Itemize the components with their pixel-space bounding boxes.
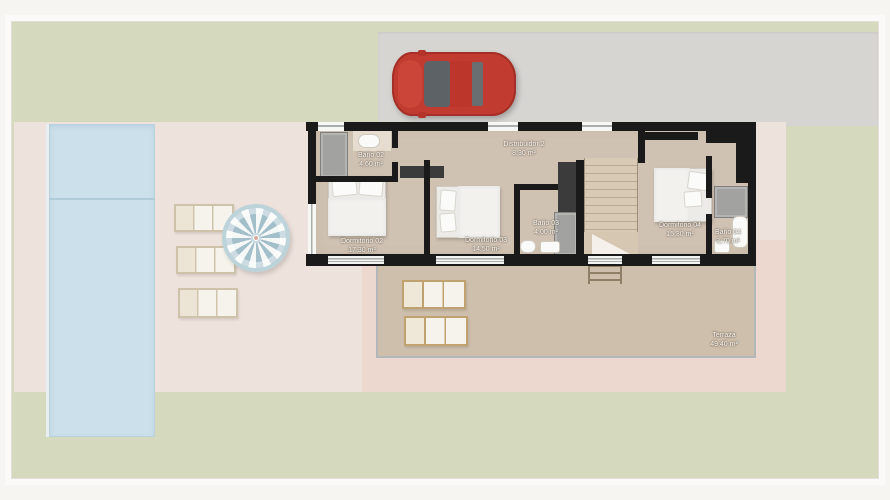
room-area: 49,40 m²: [710, 340, 738, 349]
wall: [706, 156, 712, 198]
staircase: [584, 158, 638, 232]
red-car: [392, 52, 516, 116]
wall: [706, 214, 712, 256]
car-roof: [450, 61, 472, 107]
closet: [558, 162, 578, 212]
pillow: [439, 189, 456, 211]
terrace-lounger: [402, 280, 466, 309]
room-area: 4,00 m²: [533, 228, 559, 237]
shower-bano-02: [320, 132, 348, 178]
car-windshield: [424, 61, 450, 107]
wardrobe: [400, 166, 444, 178]
room-name: Distribuidor 2: [503, 140, 544, 149]
room-area: 15,30 m²: [659, 230, 701, 239]
room-area: 4,60 m²: [358, 160, 384, 169]
wall: [706, 122, 756, 143]
window: [308, 204, 316, 254]
room-area: 14,50 m²: [465, 245, 507, 254]
window: [488, 122, 518, 131]
pillow: [439, 212, 457, 232]
glass-door: [652, 256, 700, 264]
wall: [640, 132, 698, 140]
pillow: [683, 190, 702, 207]
parasol: [222, 204, 290, 272]
site-plan-canvas: Baño 02 4,60 m² Dormitorio 02 17,30 m² D…: [0, 0, 890, 500]
car-mirror: [418, 112, 426, 118]
room-name: Dormitorio 04: [659, 221, 701, 230]
duvet: [328, 198, 386, 236]
wall: [392, 162, 398, 182]
wall: [576, 160, 584, 258]
room-name: Terraza: [710, 331, 738, 340]
car-rear-window: [472, 62, 483, 106]
room-label-bano-03: Baño 03 4,00 m²: [533, 219, 559, 237]
room-name: Baño 02: [358, 151, 384, 160]
room-label-bano-04: Baño 04 3,70 m²: [715, 228, 741, 246]
glass-door: [328, 256, 384, 264]
glass-door: [436, 256, 504, 264]
room-label-bano-02: Baño 02 4,60 m²: [358, 151, 384, 169]
terrace-door: [588, 256, 622, 264]
swimming-pool: [46, 124, 155, 437]
wall: [736, 143, 756, 183]
parasol-pole: [254, 236, 258, 240]
wall: [424, 160, 430, 260]
sun-lounger: [178, 288, 238, 318]
wall: [392, 122, 398, 148]
room-area: 8,30 m²: [503, 149, 544, 158]
room-label-dormitorio-04: Dormitorio 04 15,30 m²: [659, 221, 701, 239]
window: [318, 122, 344, 131]
toilet-bano-03: [520, 240, 536, 253]
room-area: 17,30 m²: [341, 246, 383, 255]
room-label-terraza: Terraza 49,40 m²: [710, 331, 738, 349]
wall: [514, 184, 520, 258]
room-area: 3,70 m²: [715, 237, 741, 246]
room-name: Dormitorio 03: [465, 236, 507, 245]
wall: [306, 122, 756, 131]
sink-bano-02: [358, 134, 380, 148]
car-mirror: [418, 50, 426, 56]
room-name: Dormitorio 02: [341, 237, 383, 246]
room-name: Baño 04: [715, 228, 741, 237]
window: [582, 122, 612, 131]
shower-bano-04: [714, 186, 748, 218]
room-name: Baño 03: [533, 219, 559, 228]
duvet: [458, 186, 500, 238]
wall: [308, 176, 398, 182]
pool-step-line: [49, 198, 155, 200]
car-hood: [398, 60, 422, 108]
room-label-dormitorio-03: Dormitorio 03 14,50 m²: [465, 236, 507, 254]
sink-bano-03: [540, 241, 560, 253]
room-label-distribuidor-2: Distribuidor 2 8,30 m²: [503, 140, 544, 158]
terrace-lounger: [404, 316, 468, 346]
room-label-dormitorio-02: Dormitorio 02 17,30 m²: [341, 237, 383, 255]
